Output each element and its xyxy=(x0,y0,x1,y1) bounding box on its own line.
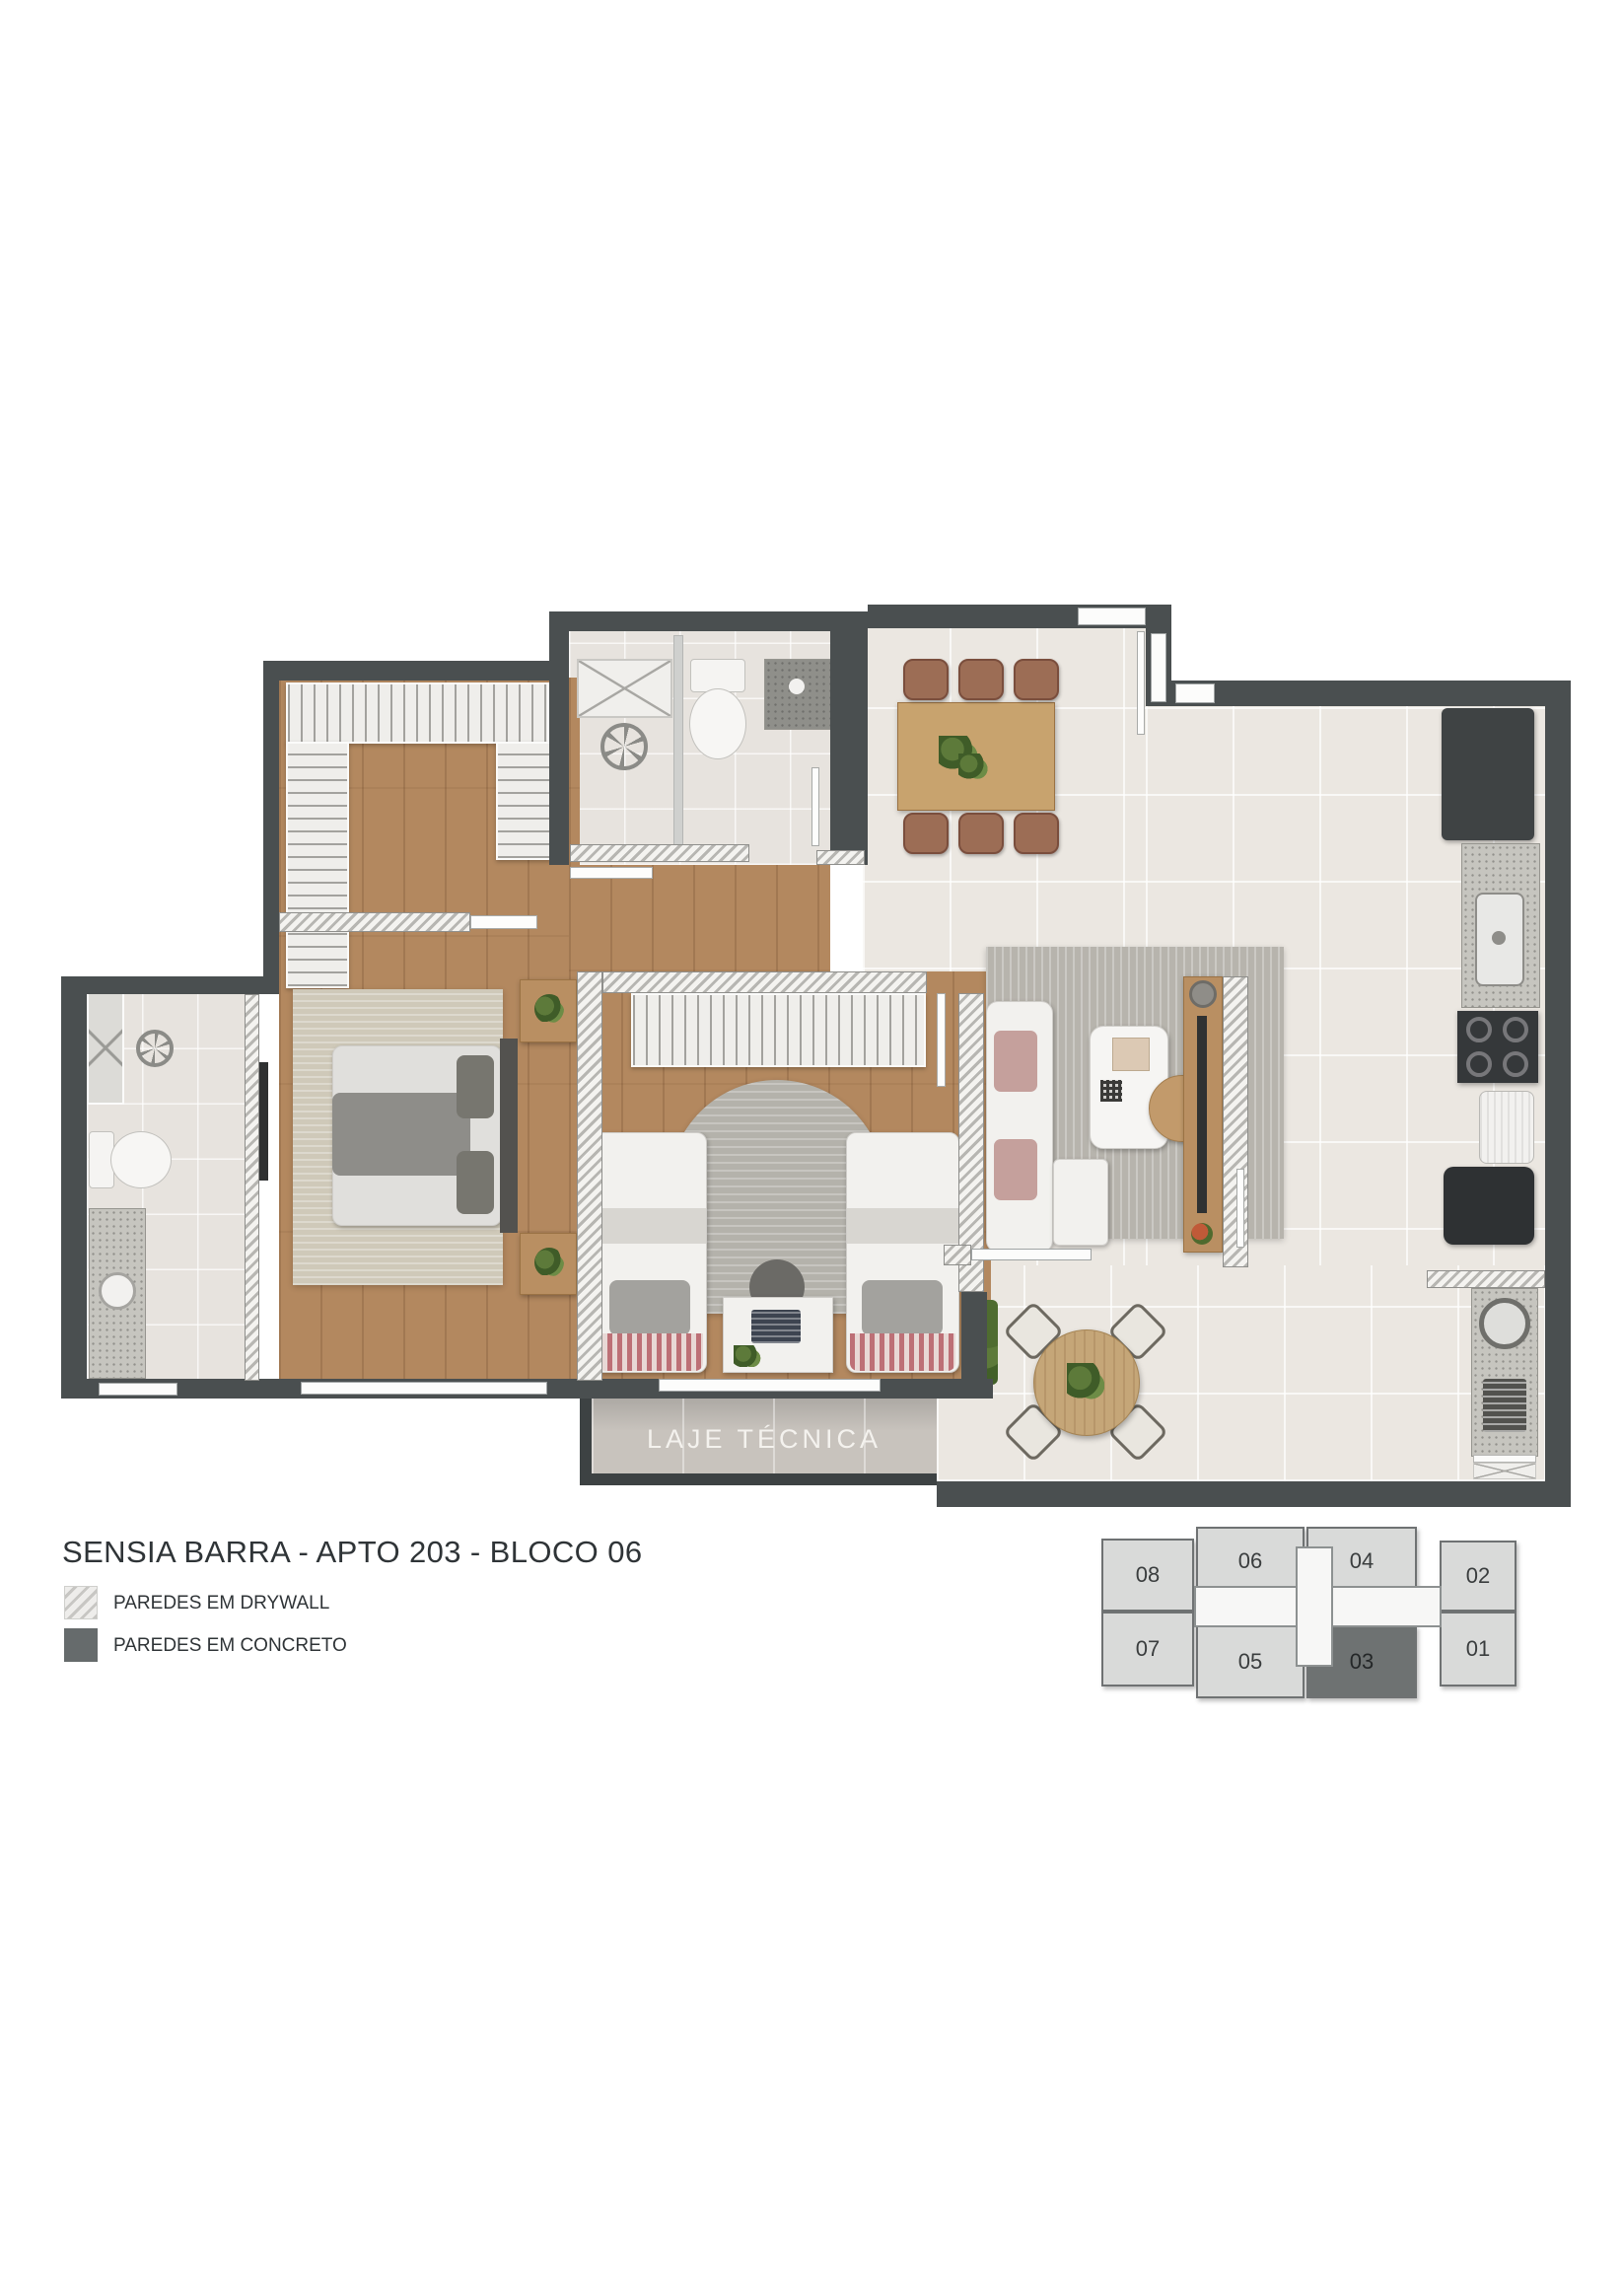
keyplan-unit-label: 05 xyxy=(1238,1649,1262,1675)
keyplan-corridor-vertical xyxy=(1296,1546,1333,1667)
keyplan-unit-label: 01 xyxy=(1466,1636,1490,1662)
keyplan: 08 06 04 02 07 05 03 01 xyxy=(0,0,1622,2296)
keyplan-unit-08: 08 xyxy=(1101,1539,1194,1612)
keyplan-unit-label: 06 xyxy=(1238,1548,1262,1574)
keyplan-unit-02: 02 xyxy=(1440,1541,1516,1612)
keyplan-unit-label: 08 xyxy=(1136,1562,1160,1588)
keyplan-unit-05: 05 xyxy=(1196,1625,1305,1698)
keyplan-unit-07: 07 xyxy=(1101,1612,1194,1686)
keyplan-unit-label: 04 xyxy=(1350,1548,1374,1574)
keyplan-unit-label: 03 xyxy=(1350,1649,1374,1675)
page: LAJE TÉCNICA xyxy=(0,0,1622,2296)
keyplan-unit-label: 07 xyxy=(1136,1636,1160,1662)
keyplan-unit-label: 02 xyxy=(1466,1563,1490,1589)
keyplan-unit-01: 01 xyxy=(1440,1612,1516,1686)
